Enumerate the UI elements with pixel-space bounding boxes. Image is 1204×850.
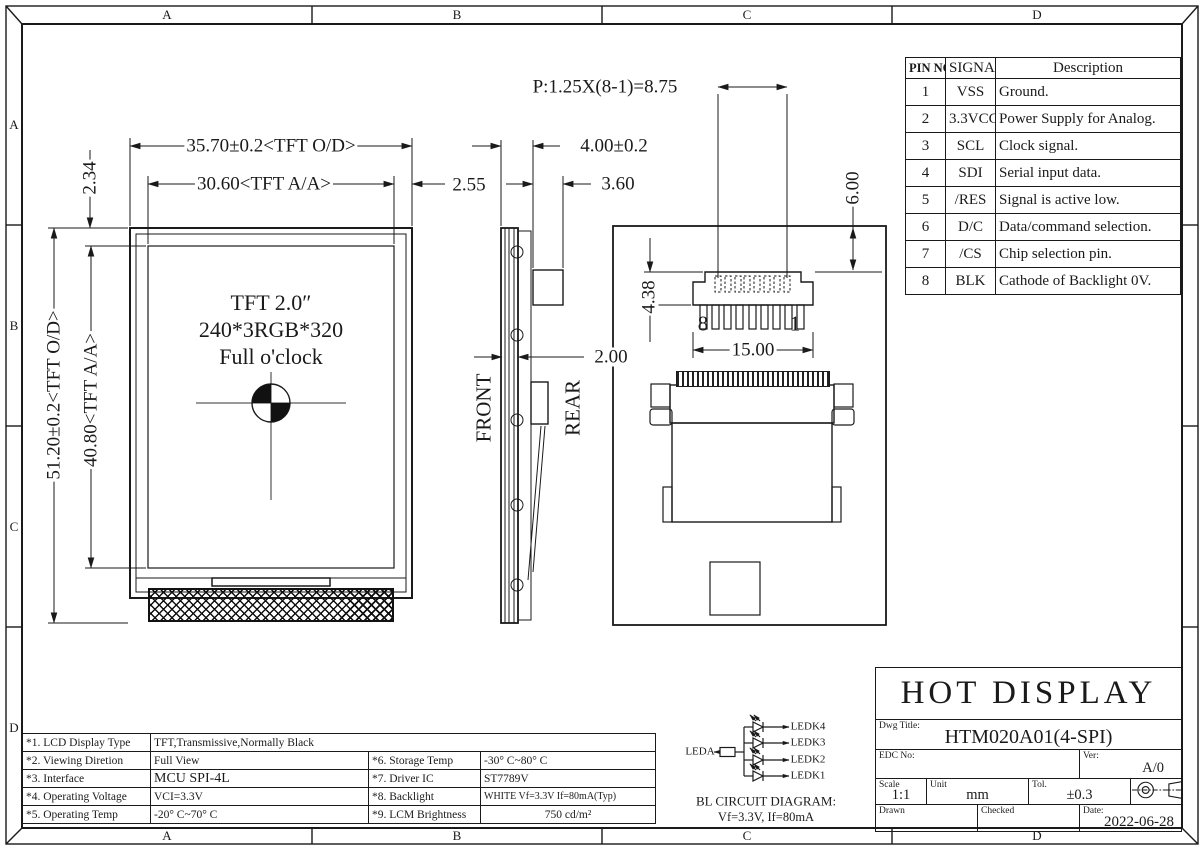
bl-cathode-ledk2: LEDK2 bbox=[791, 755, 826, 766]
pin-signal: /RES bbox=[946, 187, 996, 214]
spec-value: ST7789V bbox=[481, 770, 656, 788]
spec-key: *3. Interface bbox=[23, 770, 151, 788]
zone-bottom-c: C bbox=[743, 828, 752, 844]
scale-cell: Scale 1:1 bbox=[876, 779, 927, 805]
pin-no: 4 bbox=[906, 160, 946, 187]
pin-table-header-pin: PIN NO. bbox=[906, 58, 946, 79]
side-view-outline bbox=[501, 228, 563, 623]
pin-signal: BLK bbox=[946, 268, 996, 295]
spec-value: WHITE Vf=3.3V If=80mA(Typ) bbox=[481, 788, 656, 806]
zone-top-d: D bbox=[1032, 7, 1041, 23]
date-cell: Date: 2022-06-28 bbox=[1080, 805, 1182, 832]
zone-left-d: D bbox=[9, 720, 18, 736]
spec-row: *5. Operating Temp -20° C~70° C *9. LCM … bbox=[23, 806, 656, 824]
zone-top-a: A bbox=[162, 7, 171, 23]
pin-description: Data/command selection. bbox=[996, 214, 1181, 241]
bl-cathode-ledk4: LEDK4 bbox=[791, 722, 826, 733]
pin-signal: D/C bbox=[946, 214, 996, 241]
pin-assignment-table: PIN NO. SIGNAL Description 1 VSS Ground.… bbox=[905, 57, 1181, 295]
pin-row: 6 D/C Data/command selection. bbox=[906, 214, 1181, 241]
panel-text-viewing: Full o'clock bbox=[219, 346, 323, 368]
company-name: HOT DISPLAY bbox=[876, 668, 1182, 720]
spec-value: TFT,Transmissive,Normally Black bbox=[151, 734, 656, 752]
pin-row: 7 /CS Chip selection pin. bbox=[906, 241, 1181, 268]
center-mark bbox=[196, 372, 346, 500]
zone-bottom-b: B bbox=[453, 828, 462, 844]
zone-left-b: B bbox=[10, 318, 19, 334]
drawn-cell: Drawn bbox=[876, 805, 978, 832]
pin-signal: SDI bbox=[946, 160, 996, 187]
spec-key: *1. LCD Display Type bbox=[23, 734, 151, 752]
tolerance-cell: Tol. ±0.3 bbox=[1029, 779, 1131, 805]
pin-description: Power Supply for Analog. bbox=[996, 106, 1181, 133]
edc-no-cell: EDC No: bbox=[876, 750, 1080, 779]
bl-cathode-ledk1: LEDK1 bbox=[791, 771, 826, 782]
pin-table-header-description: Description bbox=[996, 58, 1181, 79]
pin-description: Clock signal. bbox=[996, 133, 1181, 160]
spec-key: *8. Backlight bbox=[369, 788, 481, 806]
pin-no: 5 bbox=[906, 187, 946, 214]
pin-row: 8 BLK Cathode of Backlight 0V. bbox=[906, 268, 1181, 295]
dim-width-active: 30.60<TFT A/A> bbox=[195, 175, 333, 194]
pin-signal: VSS bbox=[946, 79, 996, 106]
dim-tail-height: 4.38 bbox=[640, 278, 659, 315]
spec-row: *1. LCD Display Type TFT,Transmissive,No… bbox=[23, 734, 656, 752]
front-label: FRONT bbox=[474, 374, 495, 443]
pin-description: Cathode of Backlight 0V. bbox=[996, 268, 1181, 295]
unit-label: Unit bbox=[930, 780, 947, 790]
backlight-tail-hatch bbox=[148, 588, 394, 622]
spec-value: Full View bbox=[151, 752, 369, 770]
spec-key: *4. Operating Voltage bbox=[23, 788, 151, 806]
panel-text-size: TFT 2.0″ bbox=[231, 292, 312, 314]
pin-signal: /CS bbox=[946, 241, 996, 268]
dim-tail-offset: 6.00 bbox=[844, 169, 863, 206]
spec-key: *2. Viewing Diretion bbox=[23, 752, 151, 770]
spec-row: *3. Interface MCU SPI-4L *7. Driver IC S… bbox=[23, 770, 656, 788]
dim-total-thickness: 4.00±0.2 bbox=[578, 137, 649, 156]
bl-cathode-ledk3: LEDK3 bbox=[791, 738, 826, 749]
pin-row: 1 VSS Ground. bbox=[906, 79, 1181, 106]
zone-left-c: C bbox=[10, 519, 19, 535]
pin-description: Ground. bbox=[996, 79, 1181, 106]
pin-no: 1 bbox=[906, 79, 946, 106]
tolerance-label: Tol. bbox=[1032, 780, 1047, 790]
zone-left-a: A bbox=[9, 117, 18, 133]
pin-row: 4 SDI Serial input data. bbox=[906, 160, 1181, 187]
dim-edge-right: 2.55 bbox=[450, 176, 487, 195]
drawing-sheet: A B C D A B C D A B C D 35.70±0.2<TFT O/… bbox=[0, 0, 1204, 850]
spec-value: MCU SPI-4L bbox=[151, 770, 369, 788]
spec-value: VCI=3.3V bbox=[151, 788, 369, 806]
dim-connector-thickness: 3.60 bbox=[599, 175, 636, 194]
dim-tail-width: 15.00 bbox=[730, 341, 777, 360]
edc-no-label: EDC No: bbox=[879, 751, 915, 761]
spec-key: *7. Driver IC bbox=[369, 770, 481, 788]
spec-key: *9. LCM Brightness bbox=[369, 806, 481, 824]
dim-width-outline: 35.70±0.2<TFT O/D> bbox=[184, 137, 357, 156]
pin-number-1: 1 bbox=[790, 314, 801, 335]
bl-caption-line1: BL CIRCUIT DIAGRAM: bbox=[696, 795, 836, 808]
drawn-label: Drawn bbox=[879, 806, 905, 816]
title-block: HOT DISPLAY Dwg Title: HTM020A01(4-SPI) … bbox=[875, 667, 1182, 832]
third-angle-projection-icon bbox=[1131, 779, 1182, 801]
pin-description: Chip selection pin. bbox=[996, 241, 1181, 268]
pin-row: 3 SCL Clock signal. bbox=[906, 133, 1181, 160]
pin-signal: SCL bbox=[946, 133, 996, 160]
pin-no: 3 bbox=[906, 133, 946, 160]
dim-panel-thickness: 2.00 bbox=[592, 348, 629, 367]
pin-no: 7 bbox=[906, 241, 946, 268]
pin-no: 2 bbox=[906, 106, 946, 133]
spec-key: *5. Operating Temp bbox=[23, 806, 151, 824]
dim-edge-top: 2.34 bbox=[81, 159, 100, 196]
pin-table-header-signal: SIGNAL bbox=[946, 58, 996, 79]
date-label: Date: bbox=[1083, 806, 1104, 816]
panel-text-resolution: 240*3RGB*320 bbox=[199, 319, 343, 341]
pin-row: 5 /RES Signal is active low. bbox=[906, 187, 1181, 214]
version-cell: Ver: A/0 bbox=[1080, 750, 1182, 779]
checked-cell: Checked bbox=[978, 805, 1080, 832]
projection-symbol-cell bbox=[1131, 779, 1182, 805]
pin-description: Serial input data. bbox=[996, 160, 1181, 187]
pin-number-8: 8 bbox=[698, 314, 709, 335]
dim-pin-pitch: P:1.25X(8-1)=8.75 bbox=[531, 78, 680, 97]
spec-row: *2. Viewing Diretion Full View *6. Stora… bbox=[23, 752, 656, 770]
spec-value: -20° C~70° C bbox=[151, 806, 369, 824]
pin-row: 2 3.3VCC Power Supply for Analog. bbox=[906, 106, 1181, 133]
zone-top-c: C bbox=[743, 7, 752, 23]
spec-row: *4. Operating Voltage VCI=3.3V *8. Backl… bbox=[23, 788, 656, 806]
dwg-title-label: Dwg Title: bbox=[879, 721, 920, 731]
dwg-title-cell: Dwg Title: HTM020A01(4-SPI) bbox=[876, 720, 1182, 750]
zone-top-b: B bbox=[453, 7, 462, 23]
zone-bottom-a: A bbox=[162, 828, 171, 844]
dim-height-active: 40.80<TFT A/A> bbox=[82, 331, 101, 469]
ffc-connector-teeth bbox=[676, 371, 830, 387]
spec-key: *6. Storage Temp bbox=[369, 752, 481, 770]
bl-anode-label: LEDA bbox=[685, 747, 714, 758]
checked-label: Checked bbox=[981, 806, 1014, 816]
bl-circuit-schematic bbox=[714, 715, 789, 781]
dim-height-outline: 51.20±0.2<TFT O/D> bbox=[45, 308, 64, 481]
specification-table: *1. LCD Display Type TFT,Transmissive,No… bbox=[22, 733, 656, 824]
bl-caption-line2: Vf=3.3V, If=80mA bbox=[718, 811, 814, 824]
spec-value: 750 cd/m² bbox=[481, 806, 656, 824]
pin-description: Signal is active low. bbox=[996, 187, 1181, 214]
version-label: Ver: bbox=[1083, 751, 1099, 761]
scale-label: Scale bbox=[879, 780, 900, 790]
dwg-title: HTM020A01(4-SPI) bbox=[879, 720, 1178, 749]
spec-value: -30° C~80° C bbox=[481, 752, 656, 770]
pin-no: 8 bbox=[906, 268, 946, 295]
pin-signal: 3.3VCC bbox=[946, 106, 996, 133]
rear-label: REAR bbox=[563, 380, 584, 436]
unit-cell: Unit mm bbox=[927, 779, 1029, 805]
pin-no: 6 bbox=[906, 214, 946, 241]
